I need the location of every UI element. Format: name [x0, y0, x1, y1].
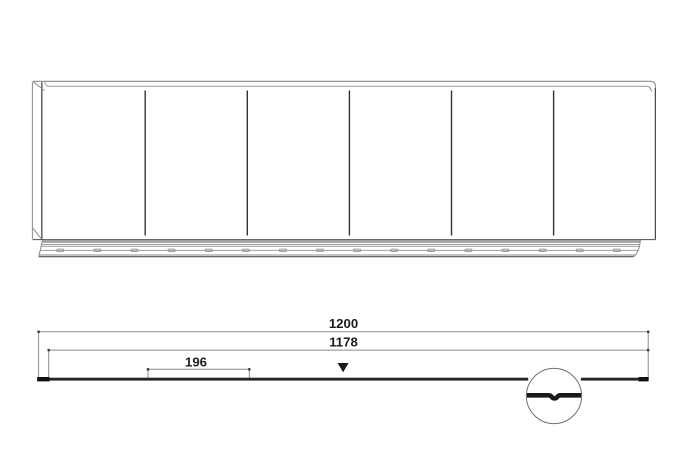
svg-text:1200: 1200 — [329, 316, 358, 331]
svg-text:1178: 1178 — [329, 334, 358, 349]
svg-text:196: 196 — [185, 354, 207, 369]
